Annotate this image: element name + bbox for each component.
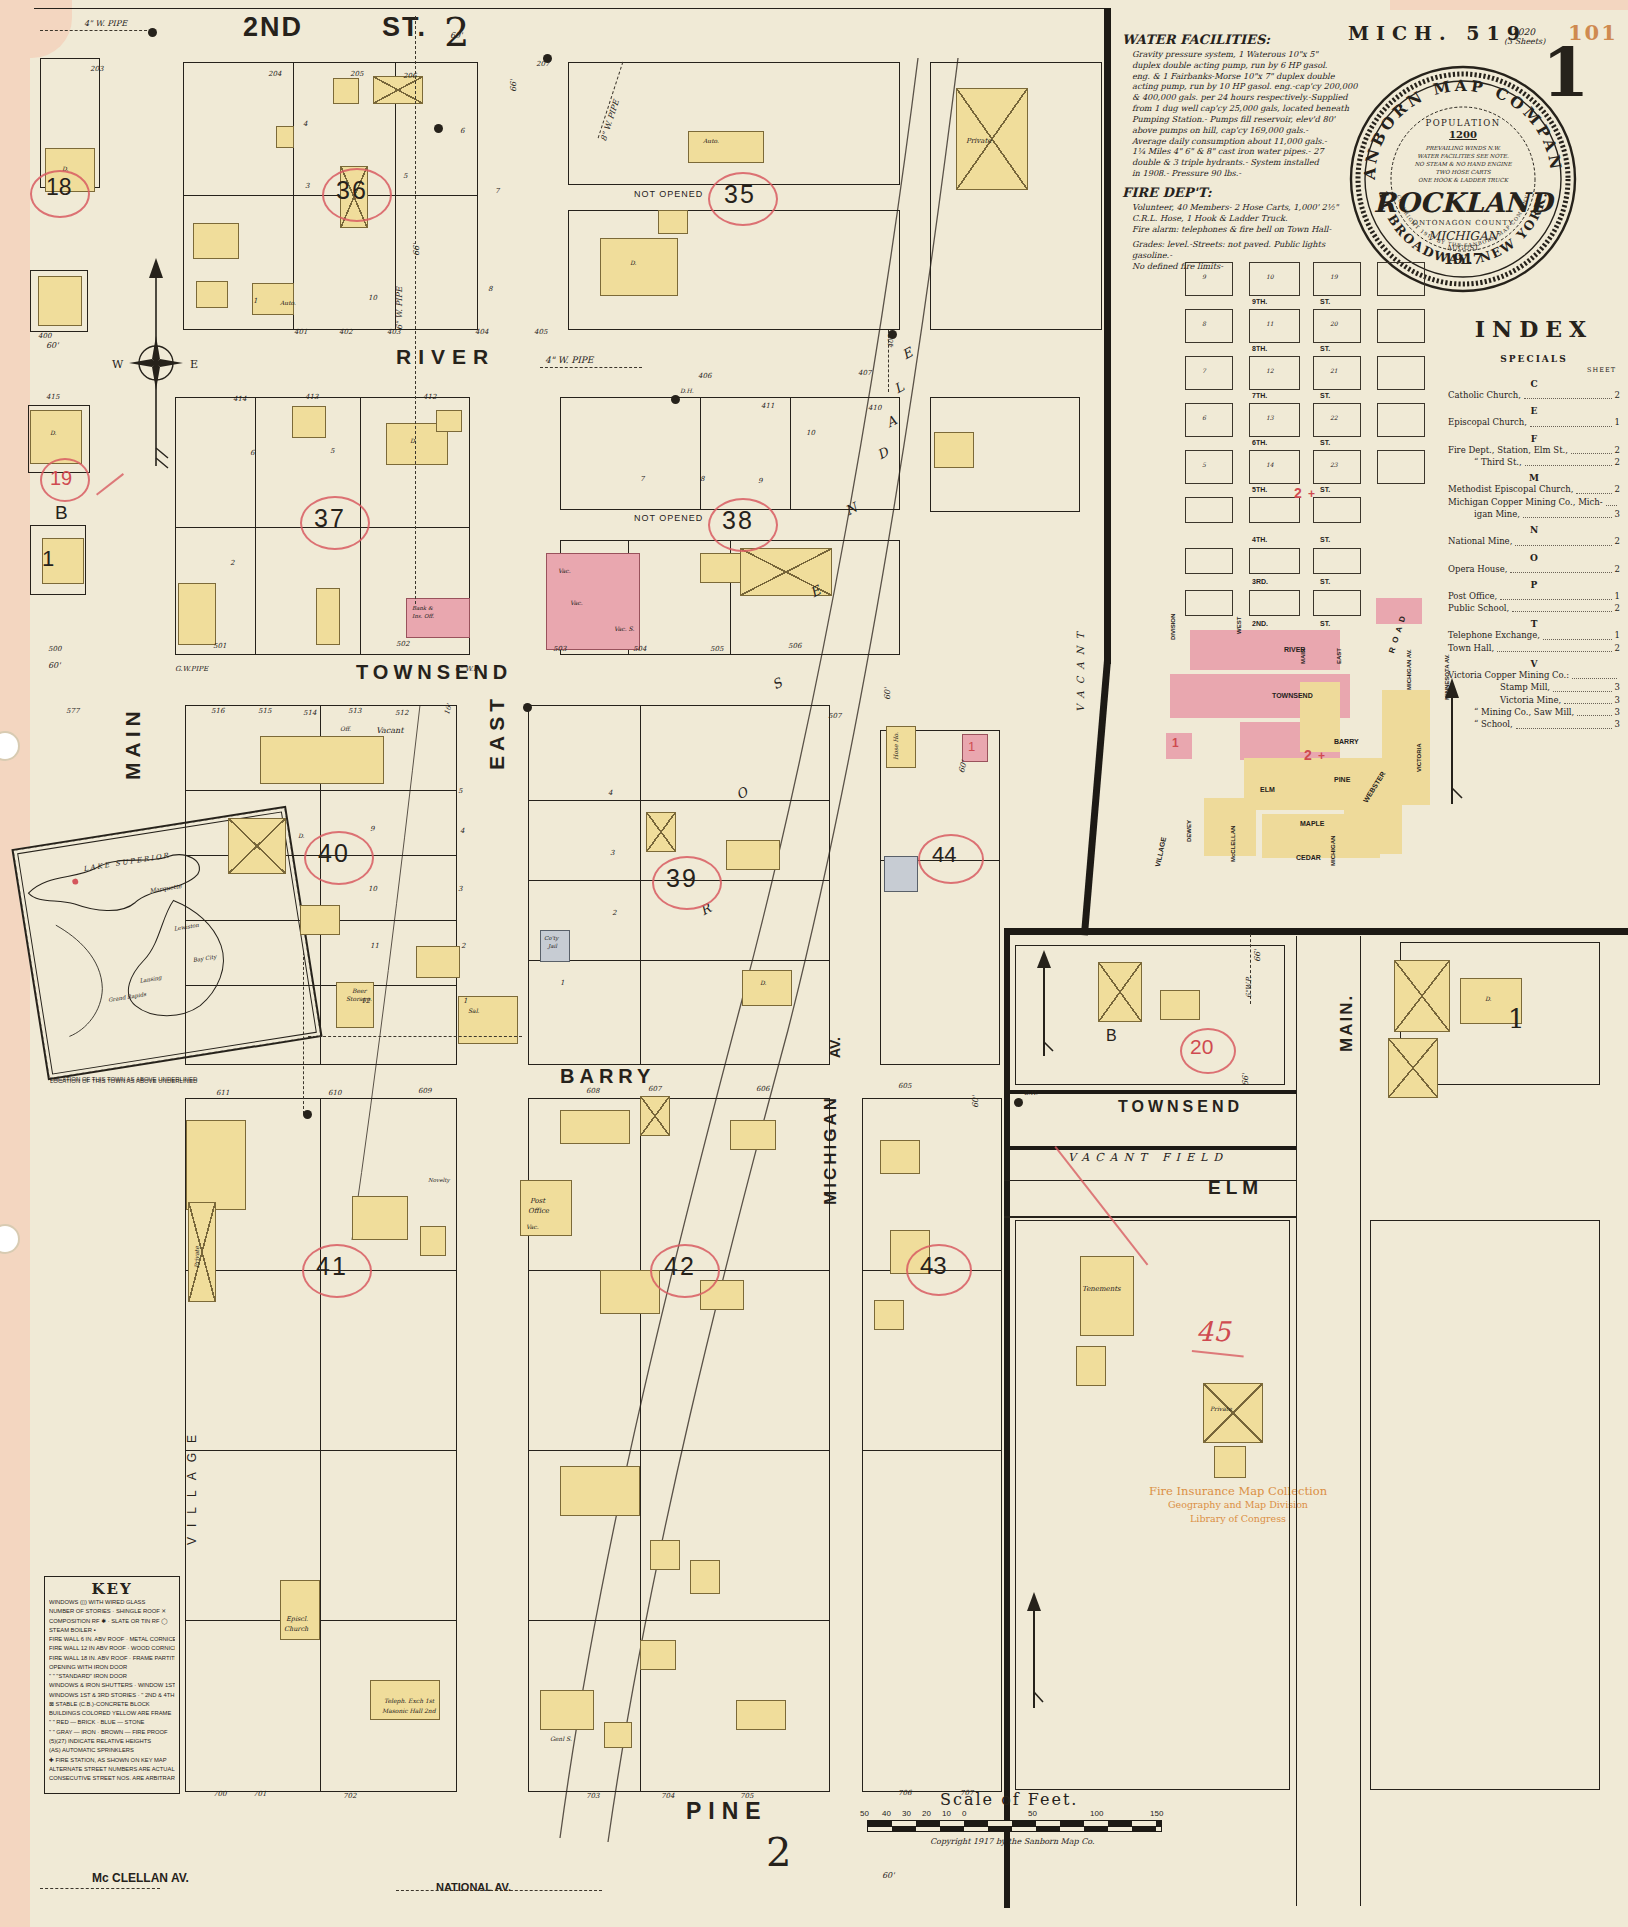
lot-number: 502: [396, 641, 409, 648]
lot-line: [640, 705, 641, 1065]
seal-note1: PREVAILING WINDS N.W.: [1426, 145, 1501, 151]
lot-line: [1004, 1216, 1296, 1218]
building: [436, 410, 462, 432]
keymap-label: ST.: [1320, 578, 1330, 585]
building: [1394, 960, 1450, 1032]
index-title: INDEX: [1448, 316, 1620, 342]
key-legend-line: " " "STANDARD" IRON DOOR: [49, 1672, 175, 1681]
index-entry-text: Victoria Copper Mining Co.:: [1448, 669, 1569, 681]
scale-number: 100: [1090, 1810, 1103, 1818]
lot-number: 415: [46, 394, 59, 401]
building-label: Private: [966, 138, 991, 145]
keymap-block: [1249, 356, 1300, 390]
index-leader: [1576, 493, 1611, 494]
key-legend-line: STEAM BOILER ▪: [49, 1626, 175, 1635]
index-entry-sheet: 2: [1615, 389, 1620, 401]
neat-line: [1004, 1090, 1296, 1094]
fire-dept-text: Volunteer, 40 Members- 2 Hose Carts, 1,0…: [1132, 202, 1364, 234]
index-entry-sheet: 2: [1615, 642, 1620, 654]
building-label: Private: [194, 1246, 200, 1268]
lot-number: 4: [608, 790, 612, 797]
index-specials: SPECIALS: [1448, 354, 1620, 364]
index-leader: [1523, 517, 1612, 518]
hydrant-dot: [303, 1110, 312, 1119]
lot-number: 500: [48, 646, 61, 653]
index-leader: [1577, 715, 1611, 716]
building: [416, 946, 460, 978]
street-label: Mc CLELLAN AV.: [92, 1872, 189, 1884]
pipe-label: 4" W. PIPE: [545, 356, 593, 365]
keymap-sheet-marker: 2: [1304, 748, 1312, 762]
block-number: 1: [42, 548, 54, 570]
red-block-circle: [650, 1244, 720, 1298]
index-leader: [1543, 639, 1612, 640]
red-block-circle: [322, 168, 392, 222]
lot-number: 6: [250, 450, 254, 457]
red-block-circle: [652, 856, 722, 910]
neat-line: [1004, 935, 1010, 1908]
keymap-label: ST.: [1320, 486, 1330, 493]
building: [884, 856, 918, 892]
lot-number: 11: [370, 943, 379, 950]
street-label: TOWNSEND: [356, 662, 512, 682]
building-label: D.: [760, 980, 767, 986]
keymap-block: [1185, 590, 1233, 616]
scale-bar: [867, 1820, 1162, 1827]
lot-number: 3: [610, 850, 614, 857]
building: [196, 281, 228, 308]
lot-number: 503: [553, 646, 566, 653]
lot-line: [185, 790, 457, 791]
index-entry: Victoria Mine,3: [1448, 694, 1620, 706]
lot-number: 577: [66, 708, 79, 715]
dim: 60': [884, 688, 892, 700]
lot-number: 412: [423, 394, 436, 401]
index-leader: [1524, 398, 1612, 399]
lot-line: [1360, 936, 1361, 1906]
seal-state: MICHIGAN: [1428, 229, 1501, 243]
annotation: NOT OPENED: [634, 190, 703, 199]
building-label: D.: [1485, 996, 1492, 1002]
keymap-block: [1249, 309, 1300, 343]
lot-number: 203: [90, 66, 103, 73]
keymap-label: ST.: [1320, 536, 1330, 543]
street-label: TOWNSEND: [1118, 1099, 1243, 1115]
index-entry: Methodist Episcopal Church,2: [1448, 483, 1620, 495]
scale-number: 0: [962, 1810, 966, 1818]
water-pipe-line: [303, 952, 304, 1114]
index-entry: Victoria Copper Mining Co.:: [1448, 669, 1620, 681]
scale-number: 50: [1028, 1810, 1037, 1818]
lot-number: 9: [758, 478, 762, 485]
page-left-margin: [0, 0, 30, 1927]
lot-number: 701: [253, 1791, 266, 1798]
building: [886, 726, 916, 768]
lot-line: [528, 960, 830, 961]
index-entry-sheet: 3: [1615, 706, 1620, 718]
building-label: Bank &: [412, 606, 433, 612]
key-legend-line: COMPOSITION RF ✱ · SLATE OR TIN RF ◯: [49, 1617, 175, 1626]
keymap-label: DEWEY: [1186, 820, 1192, 842]
index-sheet-label: SHEET: [1448, 366, 1616, 374]
hydrant-dot: [434, 124, 443, 133]
dim: 60': [882, 1872, 894, 1880]
index-letter: M: [1448, 473, 1620, 483]
keymap-block: [1185, 548, 1233, 574]
keymap-block: [1313, 590, 1361, 616]
lot-line: [528, 800, 830, 801]
index-entry: National Mine,2: [1448, 535, 1620, 547]
lot-number: 10: [368, 295, 377, 302]
keymap-block: [1377, 403, 1425, 437]
building-label: D.: [298, 833, 305, 839]
scale-number: 50: [860, 1810, 869, 1818]
block-number: 45: [1196, 1318, 1230, 1345]
lot-number: 507: [828, 713, 841, 720]
annotation: D.H.: [1024, 1090, 1038, 1096]
index-entry-text: Public School,: [1448, 602, 1509, 614]
seal-city: ROCKLAND: [1374, 187, 1556, 218]
index-entry-sheet: 2: [1615, 483, 1620, 495]
lot-number: 410: [868, 405, 881, 412]
keymap-label: 10: [1266, 274, 1274, 280]
index-entry: Town Hall,2: [1448, 642, 1620, 654]
lot-number: 605: [898, 1083, 911, 1090]
lot-number: 515: [258, 708, 271, 715]
lot-number: 4: [460, 828, 464, 835]
keymap-label: MICHIGAN AV.: [1406, 649, 1412, 690]
dim: 66': [510, 80, 518, 92]
building-label: Ins. Off.: [412, 614, 434, 620]
keymap-label: 7: [1202, 368, 1206, 374]
index-entry-sheet: 3: [1615, 694, 1620, 706]
keymap-label: 12: [1266, 368, 1274, 374]
keymap-label: 13: [1266, 415, 1274, 421]
building: [736, 1700, 786, 1730]
building-label: Teleph. Exch 1st: [384, 1698, 434, 1704]
street-label: EAST: [486, 694, 507, 770]
index-leader: [1512, 611, 1611, 612]
lot-number: 414: [233, 396, 246, 403]
building: [560, 1466, 640, 1516]
edition-note: (3 Sheets): [1504, 38, 1545, 46]
building-label: Genl S.: [550, 1736, 572, 1742]
scale-number: 150: [1150, 1810, 1163, 1818]
keymap-label: 20: [1330, 321, 1338, 327]
key-legend-line: OPENING WITH IRON DOOR: [49, 1663, 175, 1672]
keymap-label: MICHIGAN: [1330, 836, 1336, 866]
index-entry-sheet: 2: [1615, 535, 1620, 547]
building-label: Church: [284, 1626, 308, 1633]
dim: 60': [972, 1096, 980, 1108]
scale-number: 30: [902, 1810, 911, 1818]
lot-number: 411: [761, 403, 774, 410]
building: [186, 1120, 246, 1210]
keymap-label: ST.: [1320, 392, 1330, 399]
keymap-label: 22: [1330, 415, 1338, 421]
index-panel: INDEX SPECIALS SHEET CCatholic Church,2E…: [1448, 316, 1620, 731]
building-label: Auto.: [280, 300, 296, 306]
lot-number: 608: [586, 1088, 599, 1095]
building-label: Office: [528, 1208, 549, 1215]
keymap-block: [1249, 548, 1300, 574]
scale-bar: [867, 1827, 1162, 1832]
keymap-label: PINE: [1334, 776, 1350, 783]
keymap-label: 5TH.: [1252, 486, 1267, 493]
keymap-block: [1185, 450, 1233, 484]
annotation: VACANT FIELD: [1068, 1152, 1228, 1163]
pipe-label: 6" W. PIPE: [396, 287, 404, 330]
key-legend-line: WINDOWS (▯) WITH WIRED GLASS: [49, 1598, 175, 1607]
ravine-letter: L: [892, 380, 906, 396]
index-entry-text: Town Hall,: [1448, 642, 1494, 654]
building-label: Vac.: [558, 568, 571, 574]
index-entry-text: “ Mining Co., Saw Mill,: [1474, 706, 1574, 718]
keymap-block: [1313, 548, 1361, 574]
sanborn-seal: SANBORN MAP COMPANY. 11 BROADWAY. NEW YO…: [1348, 64, 1578, 294]
red-block-circle: [708, 172, 778, 226]
lot-number: 705: [740, 1793, 753, 1800]
keymap-label: 9: [1202, 274, 1206, 280]
index-entry-text: Methodist Episcopal Church,: [1448, 483, 1573, 495]
index-leader: [1571, 453, 1612, 454]
index-leader: [1606, 505, 1617, 506]
building: [1076, 1346, 1106, 1386]
lot-line: [320, 1098, 321, 1792]
index-entry: igan Mine,3: [1448, 508, 1620, 520]
lot-number: 1: [463, 998, 467, 1005]
building: [300, 905, 340, 935]
lot-line: [862, 1450, 1002, 1451]
keymap-label: 4TH.: [1252, 536, 1267, 543]
index-entry-sheet: 2: [1615, 456, 1620, 468]
street-label: NATIONAL AV.: [436, 1882, 511, 1893]
key-legend-line: FIRE WALL 6 IN. ABV ROOF · METAL CORNICE: [49, 1635, 175, 1644]
water-pipe-line: [396, 1890, 602, 1891]
lot-line: [1296, 936, 1297, 1906]
city-block: [1015, 1220, 1290, 1790]
copyright-line: Copyright 1917 by the Sanborn Map Co.: [930, 1838, 1095, 1846]
keymap-label: 8: [1202, 321, 1206, 327]
index-letter: N: [1448, 525, 1620, 535]
ravine-letter: E: [900, 346, 914, 362]
index-leader: [1515, 545, 1611, 546]
keymap-label: 9TH.: [1252, 298, 1267, 305]
lot-number: 1: [560, 980, 564, 987]
building: [38, 276, 82, 326]
block-number: 1: [968, 740, 975, 753]
index-entry-text: igan Mine,: [1474, 508, 1520, 520]
city-block: [1370, 1220, 1600, 1790]
index-leader: [1500, 599, 1611, 600]
lot-line: [34, 8, 1104, 9]
keymap-label: MAPLE: [1300, 820, 1325, 827]
annotation: D.H.: [680, 388, 694, 394]
keymap-label: 2ND.: [1252, 620, 1268, 627]
index-entry-text: Catholic Church,: [1448, 389, 1521, 401]
index-letter: P: [1448, 580, 1620, 590]
building: [880, 1140, 920, 1174]
index-leader: [1572, 678, 1617, 679]
building: [874, 1300, 904, 1330]
key-legend-line: WINDOWS 1ST & 3RD STORIES · " 2ND & 4TH: [49, 1691, 175, 1700]
building: [193, 223, 239, 259]
lot-number: 506: [788, 643, 801, 650]
index-entry-text: Victoria Mine,: [1500, 694, 1561, 706]
keymap-label: BARRY: [1334, 738, 1359, 745]
keymap-label: WEST: [1236, 617, 1242, 634]
dim: 66': [1254, 950, 1262, 962]
index-letter: V: [1448, 659, 1620, 669]
lot-number: 3: [458, 886, 462, 893]
lot-line: [700, 397, 701, 510]
lot-number: 707: [960, 1790, 973, 1797]
lot-number: 8: [488, 286, 492, 293]
building: [30, 410, 82, 464]
block-number: B: [55, 503, 68, 522]
lot-number: 413: [305, 394, 318, 401]
keymap-label: 7TH.: [1252, 392, 1267, 399]
keymap-block: [1377, 262, 1425, 296]
street-label: ELM: [1208, 1178, 1263, 1197]
index-letter: E: [1448, 406, 1620, 416]
sanborn-map-page: W E MICH. 519 2020 (3 Sheets) 101 1 WATE…: [0, 0, 1628, 1927]
key-legend-line: FIRE WALL 12 IN ABV ROOF · WOOD CORNICE: [49, 1644, 175, 1653]
keymap-label: 23: [1330, 462, 1338, 468]
building: [730, 1120, 776, 1150]
lot-number: 703: [586, 1793, 599, 1800]
keymap-frame-area: [1344, 788, 1402, 854]
key-legend-line: " " RED — BRICK · BLUE — STONE: [49, 1718, 175, 1727]
water-pipe-line: [540, 367, 642, 368]
page-top-margin: [1390, 0, 1628, 10]
lot-number: 403: [387, 329, 400, 336]
index-entry-text: Post Office,: [1448, 590, 1497, 602]
index-leader: [1564, 703, 1611, 704]
lot-number: 512: [395, 710, 408, 717]
keymap-label: VICTORIA: [1416, 743, 1422, 772]
series-number: MICH. 519: [1348, 24, 1527, 43]
lot-number: 1: [253, 298, 257, 305]
building: [1214, 1446, 1246, 1478]
seal-note4: TWO HOSE CARTS: [1436, 169, 1492, 175]
keymap-label: ST.: [1320, 298, 1330, 305]
keymap-block: [1185, 262, 1233, 296]
pipe-label: 6" W.P.: [455, 666, 479, 673]
index-letter: F: [1448, 434, 1620, 444]
hydrant-dot: [523, 703, 532, 712]
lot-number: 405: [534, 329, 547, 336]
hydrant-dot: [1014, 1098, 1023, 1107]
building: [178, 583, 216, 645]
seal-population: 1200: [1449, 129, 1477, 140]
water-pipe-line: [1250, 934, 1251, 1004]
dim: 60': [48, 662, 60, 670]
lot-number: 4: [303, 121, 307, 128]
building-label: Episcl.: [286, 1616, 308, 1623]
key-legend-line: CONSECUTIVE STREET NOS. ARE ARBITRARY: [49, 1774, 175, 1783]
index-entry-sheet: 3: [1615, 508, 1620, 520]
keymap-label: 8TH.: [1252, 345, 1267, 352]
index-entry-text: Opera House,: [1448, 563, 1507, 575]
red-block-circle: [1180, 1028, 1236, 1074]
neat-line: [1004, 928, 1628, 935]
street-label: RIVER: [396, 346, 495, 367]
red-block-circle: [300, 496, 370, 550]
compass-west: W: [112, 358, 124, 371]
keymap-label: MINNESOTA AV.: [1444, 654, 1450, 700]
index-entry-sheet: 3: [1615, 681, 1620, 693]
lot-number: 204: [268, 71, 281, 78]
index-entry-sheet: 1: [1615, 416, 1620, 428]
lot-number: 2: [612, 910, 616, 917]
building: [934, 432, 974, 468]
index-entry: Opera House,2: [1448, 563, 1620, 575]
keymap-label: MAIN: [1300, 649, 1306, 664]
map-key-legend: KEY WINDOWS (▯) WITH WIRED GLASSNUMBER O…: [44, 1576, 180, 1794]
lot-number: 402: [339, 329, 352, 336]
lot-number: 5: [330, 448, 334, 455]
building: [1098, 962, 1142, 1022]
index-entry-text: Fire Dept., Station, Elm St.,: [1448, 444, 1568, 456]
pipe-label: 4" W. PIPE: [84, 20, 127, 28]
water-pipe-line: [888, 330, 889, 392]
index-leader: [1553, 691, 1612, 692]
lot-number: 7: [640, 476, 644, 483]
lot-number: 10: [806, 430, 815, 437]
lot-number: 407: [858, 370, 871, 377]
lot-number: 8: [700, 476, 704, 483]
keymap-sheet-marker: +: [1308, 488, 1315, 500]
index-entry: Stamp Mill,3: [1448, 681, 1620, 693]
building: [292, 406, 326, 438]
keymap-label: 19: [1330, 274, 1338, 280]
lot-line: [255, 397, 256, 655]
lot-number: 5: [458, 788, 462, 795]
red-block-circle: [708, 498, 778, 552]
hydrant-dot: [148, 28, 157, 37]
water-pipe-line: [40, 30, 152, 31]
city-block: [568, 62, 900, 185]
keymap-sheet-marker: 1: [1172, 737, 1179, 749]
water-facilities-text: Gravity pressure system, 1 Waterous 10"x…: [1132, 49, 1364, 179]
street-label: MAIN.: [1338, 994, 1355, 1052]
building: [333, 78, 359, 104]
building-label: Post: [530, 1198, 545, 1205]
building-label: Off.: [340, 726, 351, 732]
key-legend-line: (AS) AUTOMATIC SPRINKLERS: [49, 1746, 175, 1755]
street-label: AV.: [828, 1037, 842, 1058]
hydrant-dot: [543, 54, 552, 63]
building-label: D.: [630, 260, 637, 266]
keymap-label: DIVISION: [1170, 614, 1176, 640]
water-pipe-line: [415, 16, 416, 604]
building: [604, 1722, 632, 1748]
key-legend-line: FIRE WALL 18 IN. ABV ROOF · FRAME PARTIT…: [49, 1654, 175, 1663]
building: [316, 588, 340, 645]
key-legend-line: (5)(27) INDICATE RELATIVE HEIGHTS: [49, 1737, 175, 1746]
keymap-block: [1249, 403, 1300, 437]
lot-number: 516: [211, 708, 224, 715]
lot-line: [185, 985, 457, 986]
neat-line: [1004, 1146, 1296, 1150]
lot-number: 504: [633, 646, 646, 653]
building-label: Vac.: [570, 600, 583, 606]
index-entry-text: “ Third St.,: [1474, 456, 1522, 468]
annotation: VACANT: [1076, 626, 1086, 712]
building-label: Sal.: [468, 1008, 480, 1014]
keymap-block: [1185, 403, 1233, 437]
